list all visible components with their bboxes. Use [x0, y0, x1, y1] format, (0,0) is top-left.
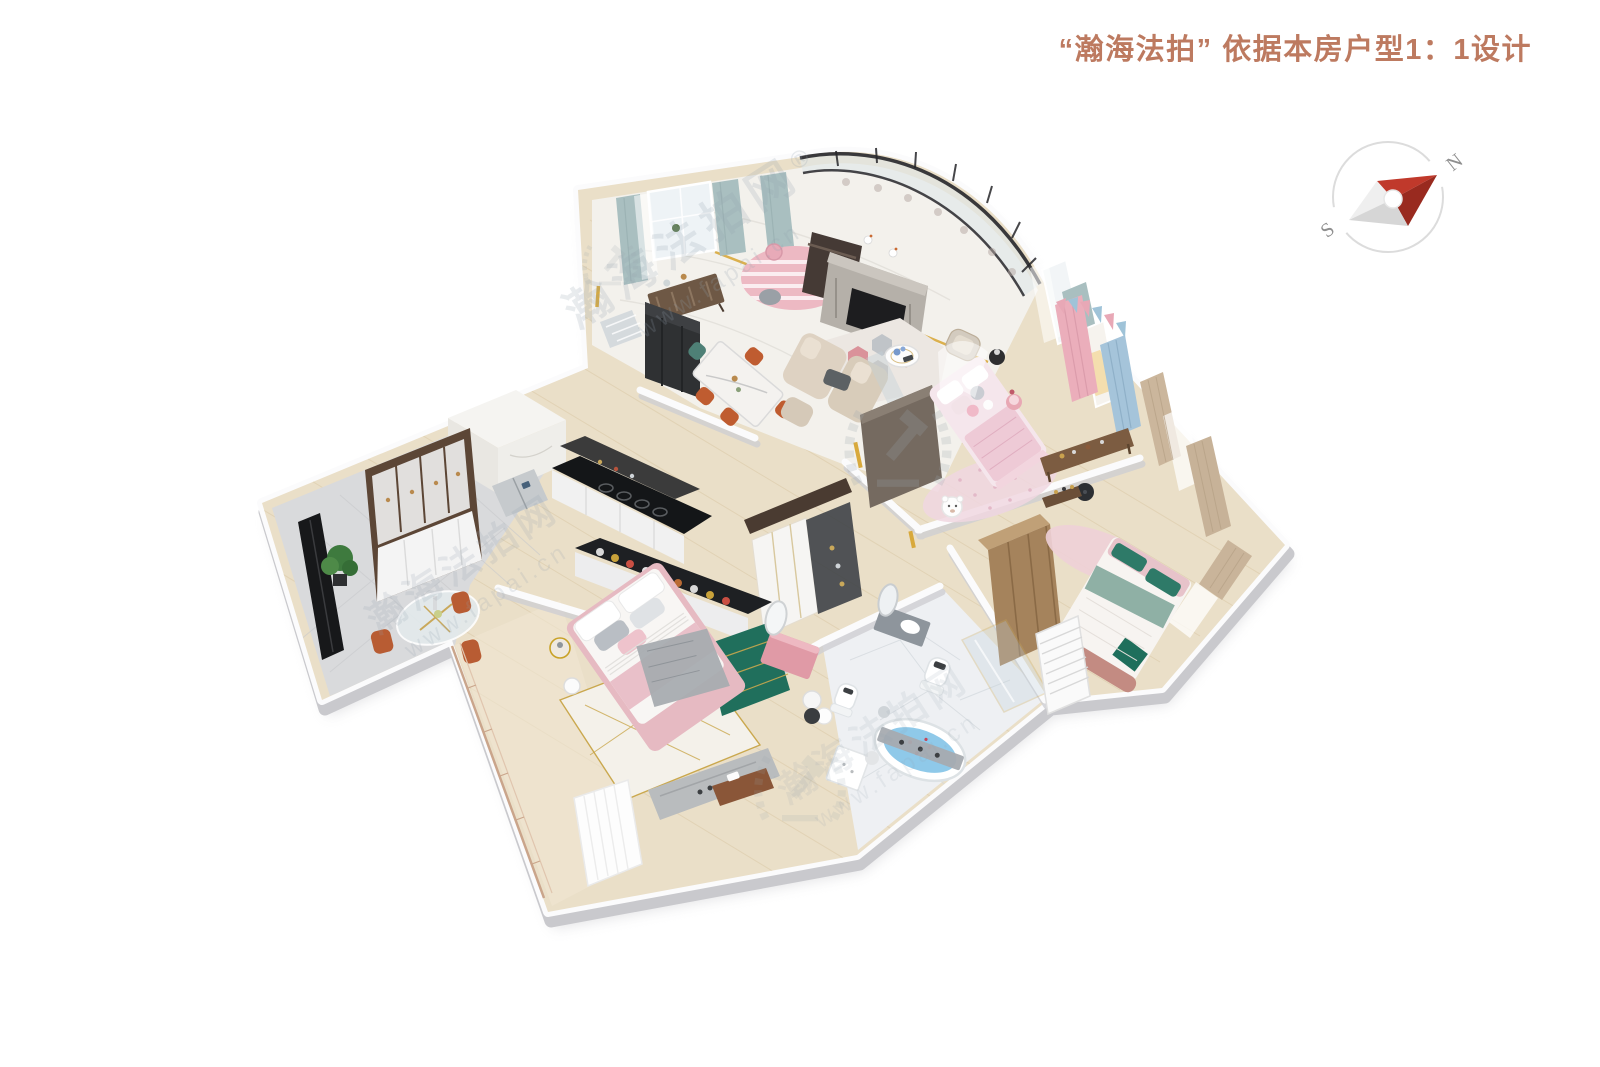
compass-needle-icon	[1349, 175, 1437, 226]
beanbag	[759, 289, 781, 305]
dark-stool	[804, 708, 820, 724]
floor-plan-scene: 瀚海法拍网® www.fapai.cn 瀚海法拍网 www.fapai.cn 瀚…	[0, 0, 1600, 1067]
floor-plan-page: “瀚海法拍” 依据本房户型1：1设计	[0, 0, 1600, 1067]
bear-rug	[942, 496, 963, 517]
pouf-button	[1083, 490, 1087, 494]
side-table-lamp	[989, 349, 1005, 365]
coffee-table	[885, 345, 919, 367]
compass: N S	[1316, 142, 1467, 252]
stool	[803, 691, 821, 709]
